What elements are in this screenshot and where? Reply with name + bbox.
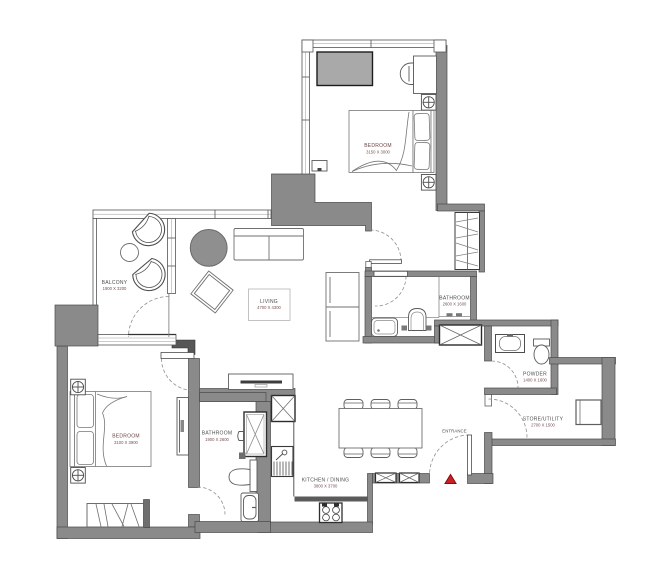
svg-text:2600 X 1600: 2600 X 1600 (443, 302, 467, 307)
svg-text:4700 X 4300: 4700 X 4300 (257, 305, 281, 310)
svg-text:1400 X 1600: 1400 X 1600 (523, 378, 547, 383)
svg-text:3150 X 3000: 3150 X 3000 (366, 150, 390, 155)
svg-text:3800 X 3700: 3800 X 3700 (314, 484, 338, 489)
svg-text:BEDROOM: BEDROOM (364, 143, 392, 149)
svg-text:1900 X 2600: 1900 X 2600 (205, 437, 229, 442)
svg-text:3100 X 3900: 3100 X 3900 (114, 440, 138, 445)
svg-text:2700 X 1500: 2700 X 1500 (531, 423, 555, 428)
svg-text:BATHROOM: BATHROOM (202, 431, 233, 437)
svg-text:ENTRANCE: ENTRANCE (442, 428, 466, 433)
svg-text:1900 X 3200: 1900 X 3200 (103, 286, 127, 291)
svg-text:BEDROOM: BEDROOM (112, 434, 140, 440)
